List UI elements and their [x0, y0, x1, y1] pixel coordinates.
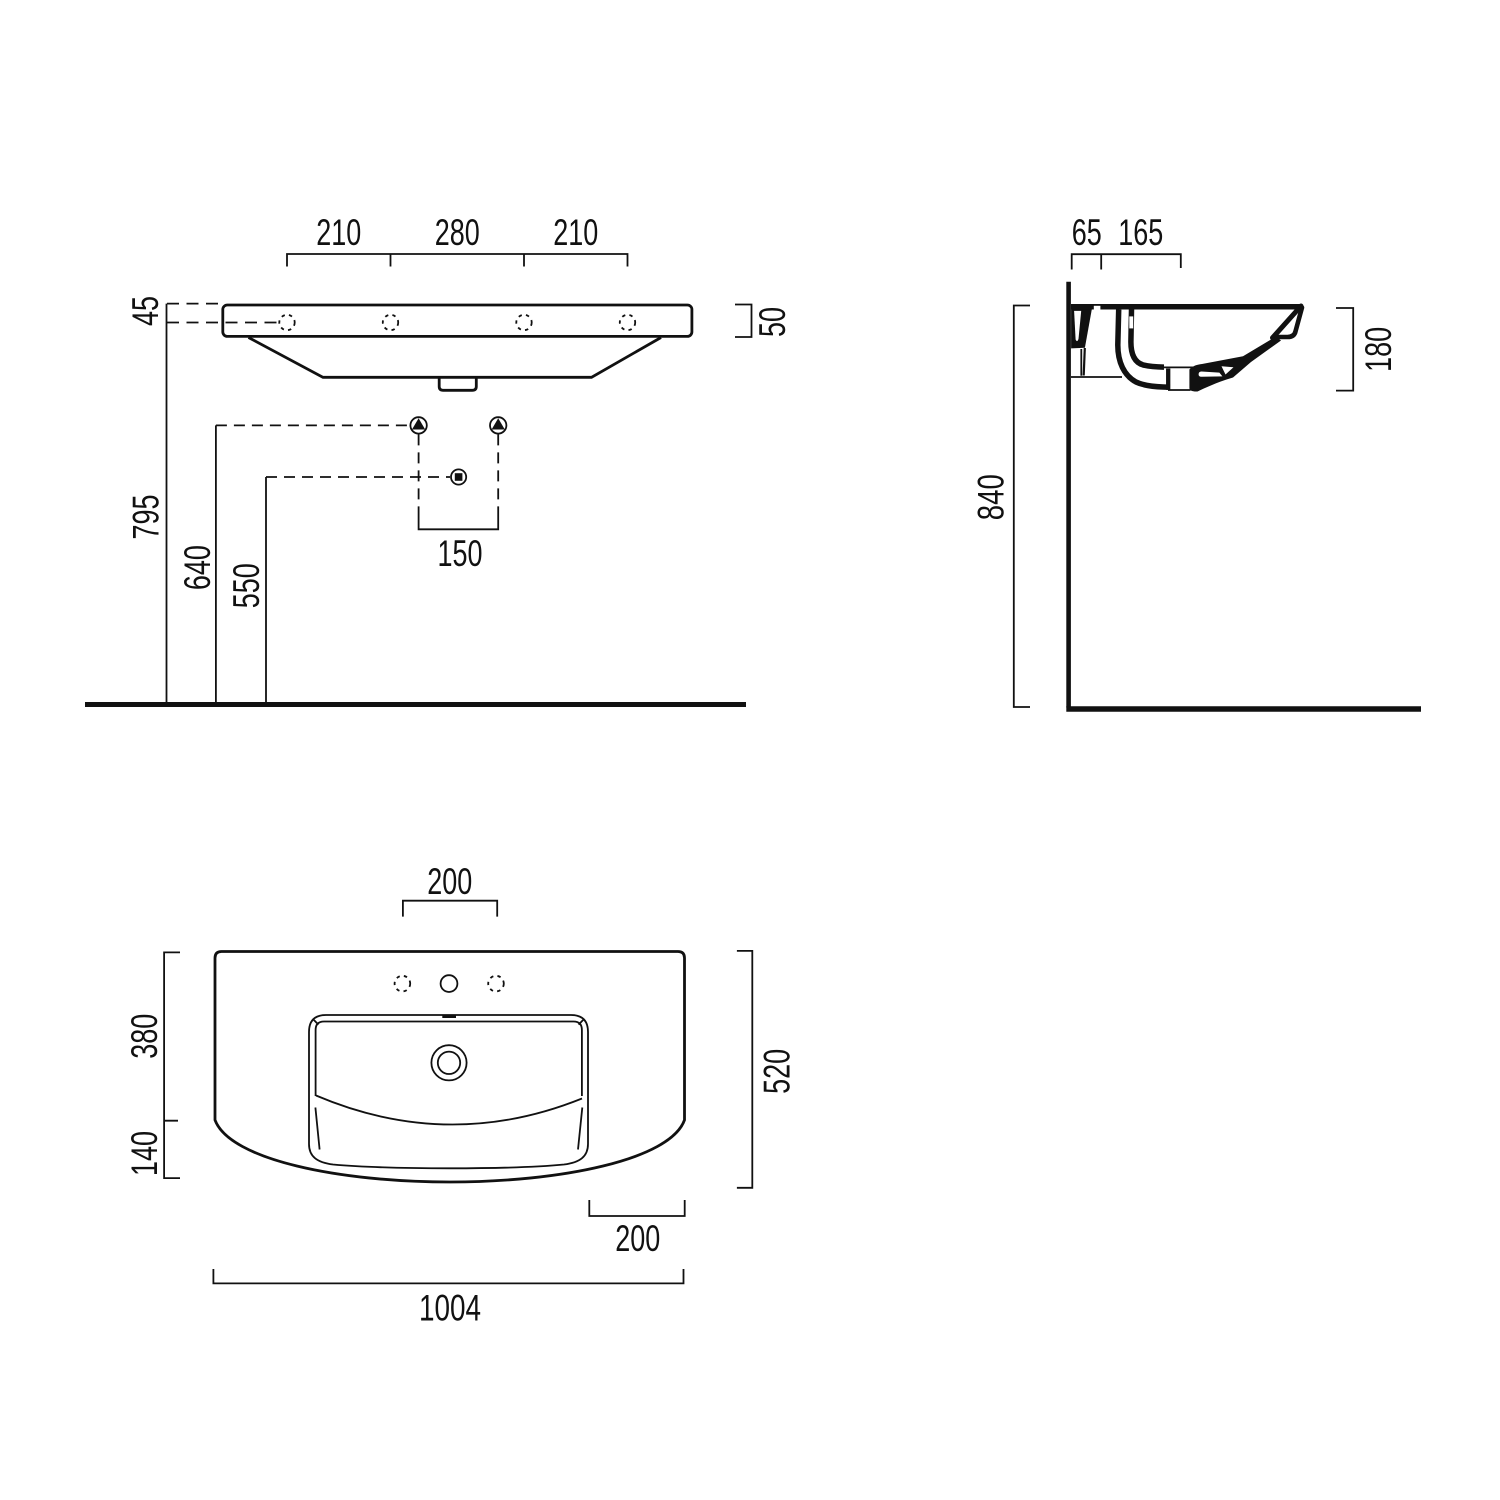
svg-text:200: 200	[615, 1218, 660, 1259]
svg-text:45: 45	[125, 296, 166, 326]
svg-text:140: 140	[124, 1131, 165, 1176]
svg-text:550: 550	[226, 563, 267, 608]
svg-text:165: 165	[1118, 212, 1163, 253]
svg-text:840: 840	[970, 474, 1011, 520]
svg-text:200: 200	[427, 861, 472, 902]
svg-text:210: 210	[316, 212, 361, 253]
svg-text:640: 640	[177, 545, 218, 590]
svg-text:150: 150	[438, 533, 483, 574]
svg-text:280: 280	[435, 212, 480, 253]
svg-text:50: 50	[752, 307, 793, 337]
svg-text:1004: 1004	[419, 1288, 481, 1329]
svg-text:795: 795	[126, 495, 167, 540]
svg-text:180: 180	[1358, 327, 1399, 372]
svg-text:380: 380	[124, 1014, 165, 1059]
svg-text:210: 210	[553, 212, 598, 253]
svg-text:65: 65	[1072, 212, 1102, 253]
svg-text:520: 520	[757, 1049, 798, 1094]
